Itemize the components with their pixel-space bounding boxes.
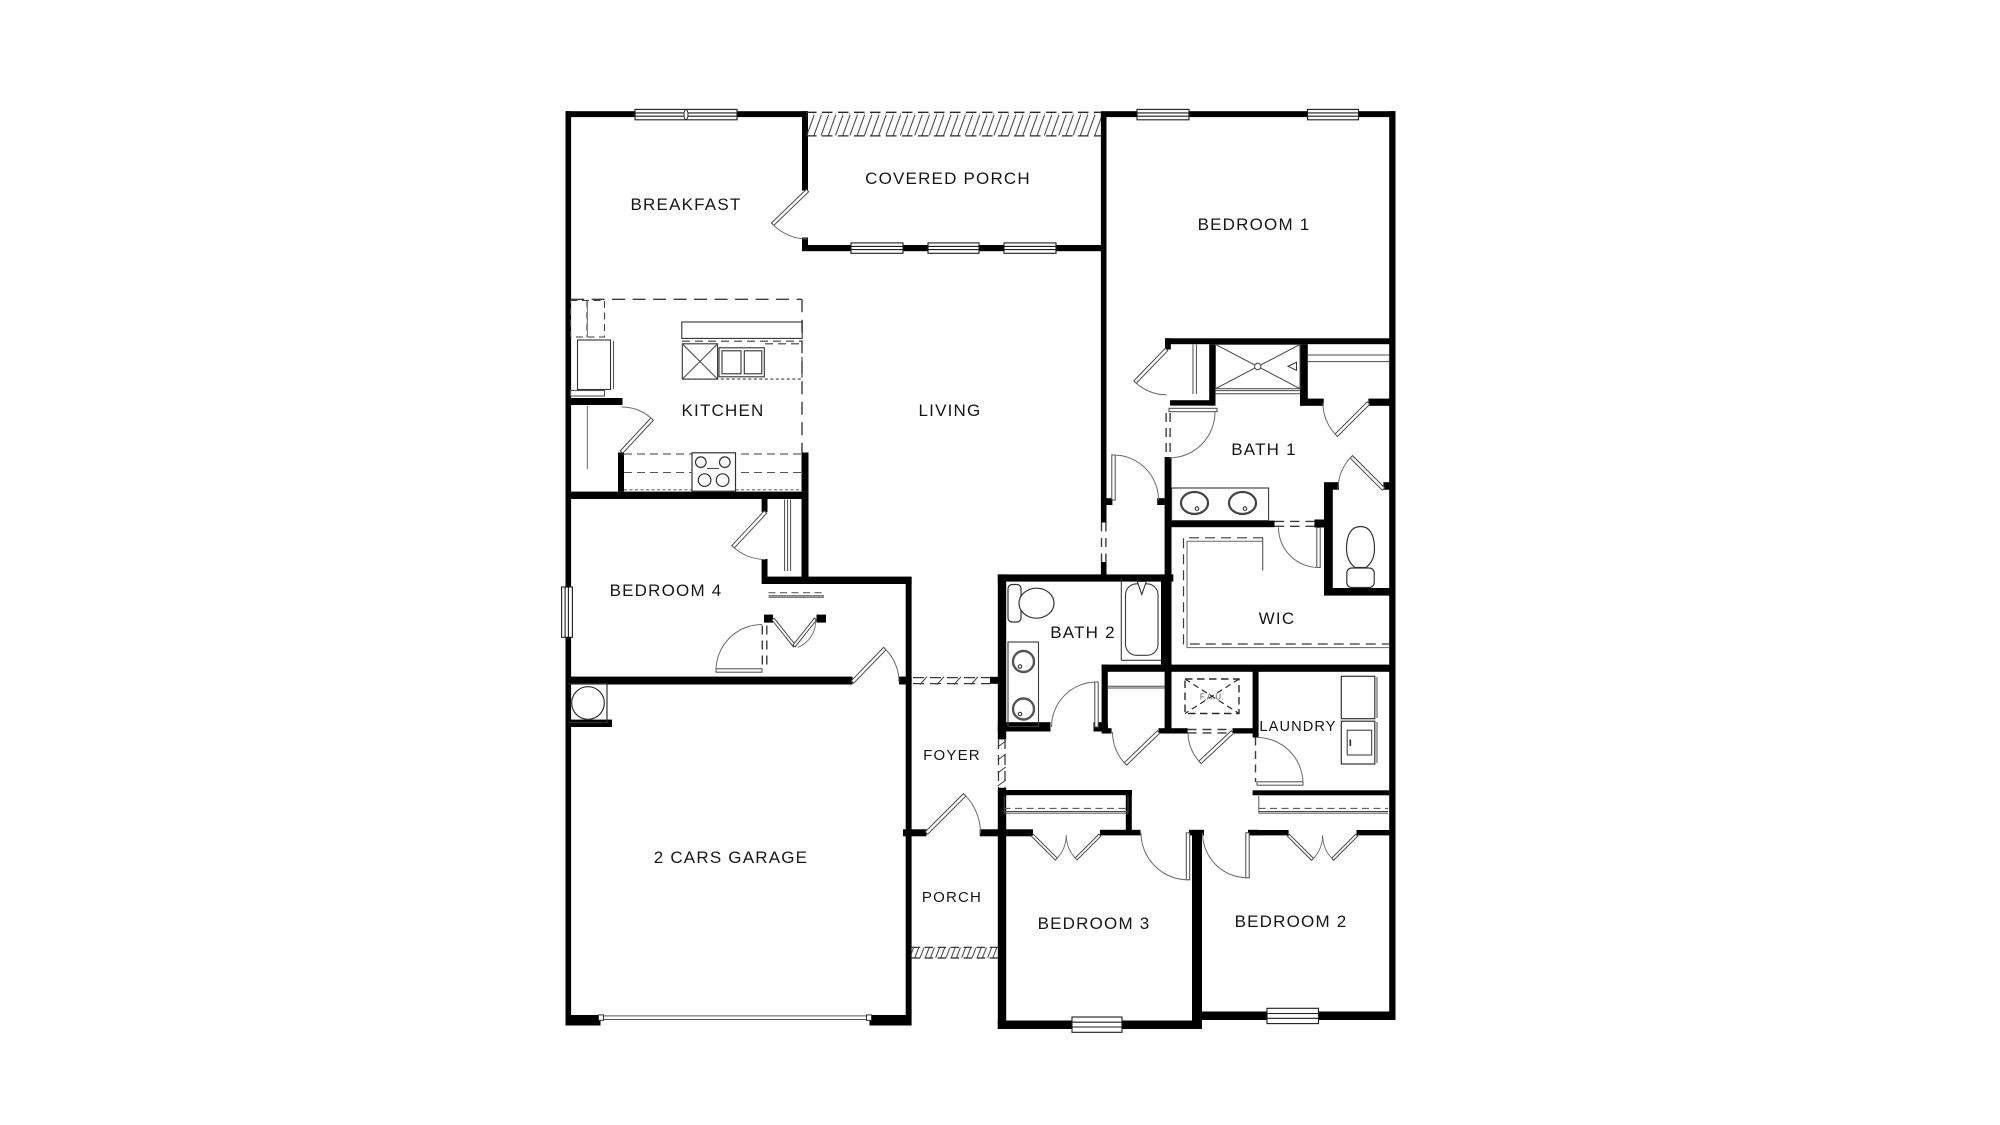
svg-text:WIC: WIC: [1259, 609, 1296, 628]
svg-text:BEDROOM 2: BEDROOM 2: [1235, 912, 1348, 931]
svg-text:COVERED PORCH: COVERED PORCH: [865, 169, 1031, 188]
svg-text:BEDROOM 1: BEDROOM 1: [1198, 215, 1311, 234]
svg-text:LIVING: LIVING: [919, 401, 982, 420]
svg-text:KITCHEN: KITCHEN: [681, 401, 764, 420]
svg-text:PORCH: PORCH: [922, 889, 982, 906]
svg-text:BEDROOM 3: BEDROOM 3: [1038, 914, 1151, 933]
svg-text:BATH 2: BATH 2: [1050, 623, 1115, 642]
svg-text:F.A.U.: F.A.U.: [1200, 693, 1224, 702]
svg-text:FOYER: FOYER: [923, 747, 981, 764]
svg-text:LAUNDRY: LAUNDRY: [1259, 719, 1336, 735]
svg-text:BATH 1: BATH 1: [1231, 440, 1296, 459]
svg-text:BEDROOM 4: BEDROOM 4: [610, 581, 723, 600]
svg-text:BREAKFAST: BREAKFAST: [631, 195, 742, 214]
svg-text:2 CARS GARAGE: 2 CARS GARAGE: [654, 848, 808, 867]
